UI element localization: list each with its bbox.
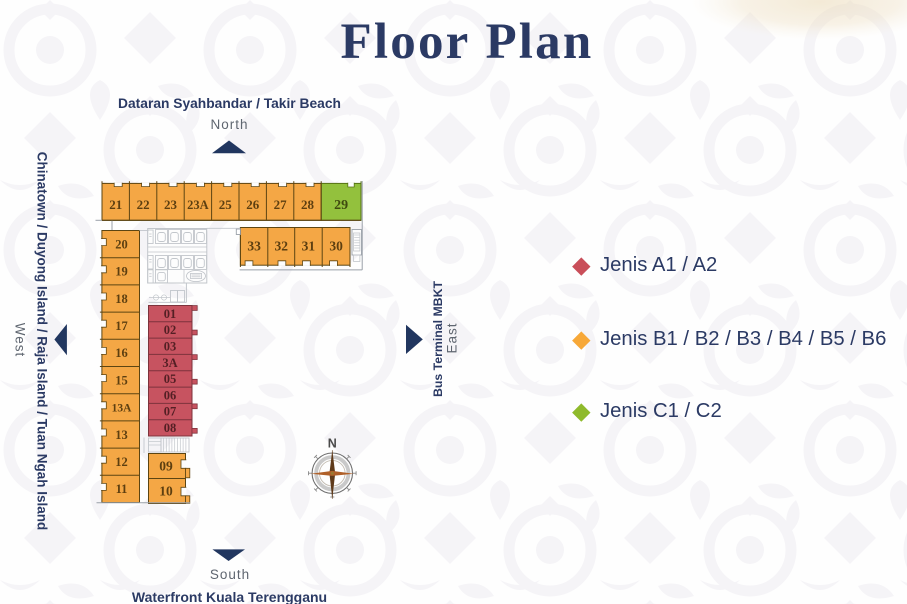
svg-text:25: 25	[219, 197, 233, 212]
svg-text:20: 20	[115, 237, 128, 251]
svg-text:12: 12	[115, 455, 128, 469]
svg-text:13: 13	[115, 428, 128, 442]
svg-text:02: 02	[164, 323, 177, 337]
svg-text:15: 15	[115, 373, 128, 387]
svg-text:23A: 23A	[187, 198, 209, 212]
svg-text:03: 03	[164, 339, 177, 353]
svg-text:09: 09	[159, 458, 173, 473]
svg-text:23: 23	[164, 197, 178, 212]
svg-text:08: 08	[164, 421, 177, 435]
svg-text:28: 28	[301, 197, 315, 212]
svg-text:17: 17	[115, 319, 128, 333]
svg-text:21: 21	[109, 197, 122, 212]
svg-text:32: 32	[274, 239, 288, 254]
svg-text:06: 06	[164, 388, 177, 402]
svg-text:33: 33	[247, 239, 261, 254]
svg-text:10: 10	[159, 483, 173, 498]
svg-text:22: 22	[137, 197, 150, 212]
svg-text:30: 30	[329, 239, 343, 254]
svg-text:29: 29	[334, 198, 348, 213]
svg-text:N: N	[328, 437, 337, 451]
svg-text:3A: 3A	[162, 356, 177, 370]
svg-text:31: 31	[302, 239, 316, 254]
svg-text:13A: 13A	[112, 403, 133, 415]
svg-text:19: 19	[115, 265, 128, 279]
svg-text:11: 11	[116, 482, 128, 496]
svg-text:07: 07	[164, 405, 177, 419]
svg-text:01: 01	[164, 307, 177, 321]
svg-text:16: 16	[115, 346, 128, 360]
svg-text:05: 05	[164, 372, 177, 386]
svg-text:26: 26	[246, 197, 260, 212]
svg-text:18: 18	[115, 292, 128, 306]
svg-text:27: 27	[274, 197, 288, 212]
